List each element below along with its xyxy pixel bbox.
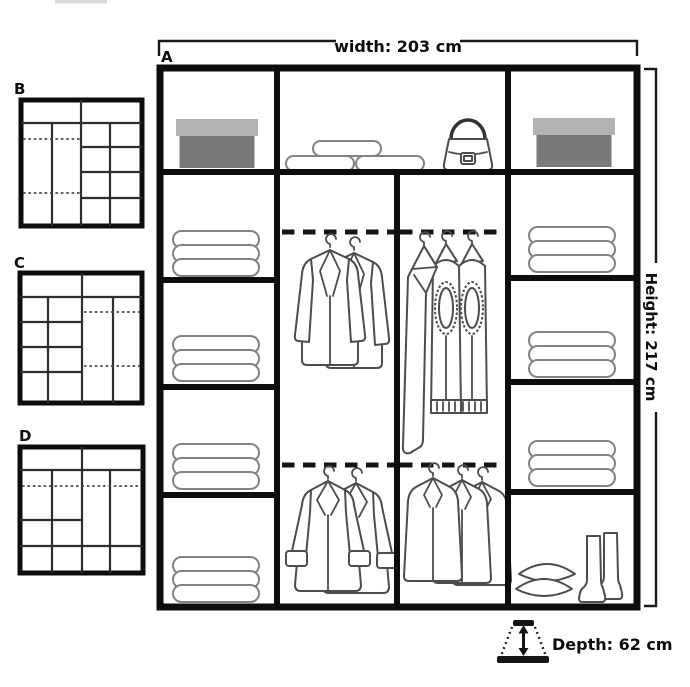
height-label: Height: 217 cm [642,273,660,402]
folded-stack-icon [529,441,615,486]
variant-d: D [19,427,143,573]
depth-dimension: Depth: 62 cm [497,620,673,663]
folded-stack-icon [173,557,259,602]
right-column-stacks [529,227,615,486]
folded-stack-icon [173,231,259,276]
variant-c: C [14,254,142,403]
blanket-roll-icon [286,156,354,171]
storage-box-icon [176,119,258,168]
height-dimension: Height: 217 cm [642,69,660,606]
width-dimension: width: 203 cm [159,37,637,56]
variant-d-label: D [19,427,31,445]
main-wardrobe-label: A [161,48,173,66]
variant-b-label: B [14,80,25,98]
variant-c-label: C [14,254,25,272]
main-wardrobe [160,68,637,607]
blanket-roll-icon [313,141,381,156]
diagram-svg: B C D width: 203 cm Height: 217 cm A [0,0,690,687]
storage-box-icon [533,118,615,167]
folded-stack-icon [529,332,615,377]
depth-label: Depth: 62 cm [552,635,673,654]
folded-stack-icon [173,444,259,489]
width-label: width: 203 cm [334,37,462,56]
folded-stack-icon [173,336,259,381]
folded-stack-icon [529,227,615,272]
blanket-roll-icon [356,156,424,171]
variant-b: B [14,80,142,226]
wardrobe-layout-diagram: B C D width: 203 cm Height: 217 cm A [0,0,690,687]
screenshot-artifact [55,0,107,4]
depth-icon [497,620,549,663]
